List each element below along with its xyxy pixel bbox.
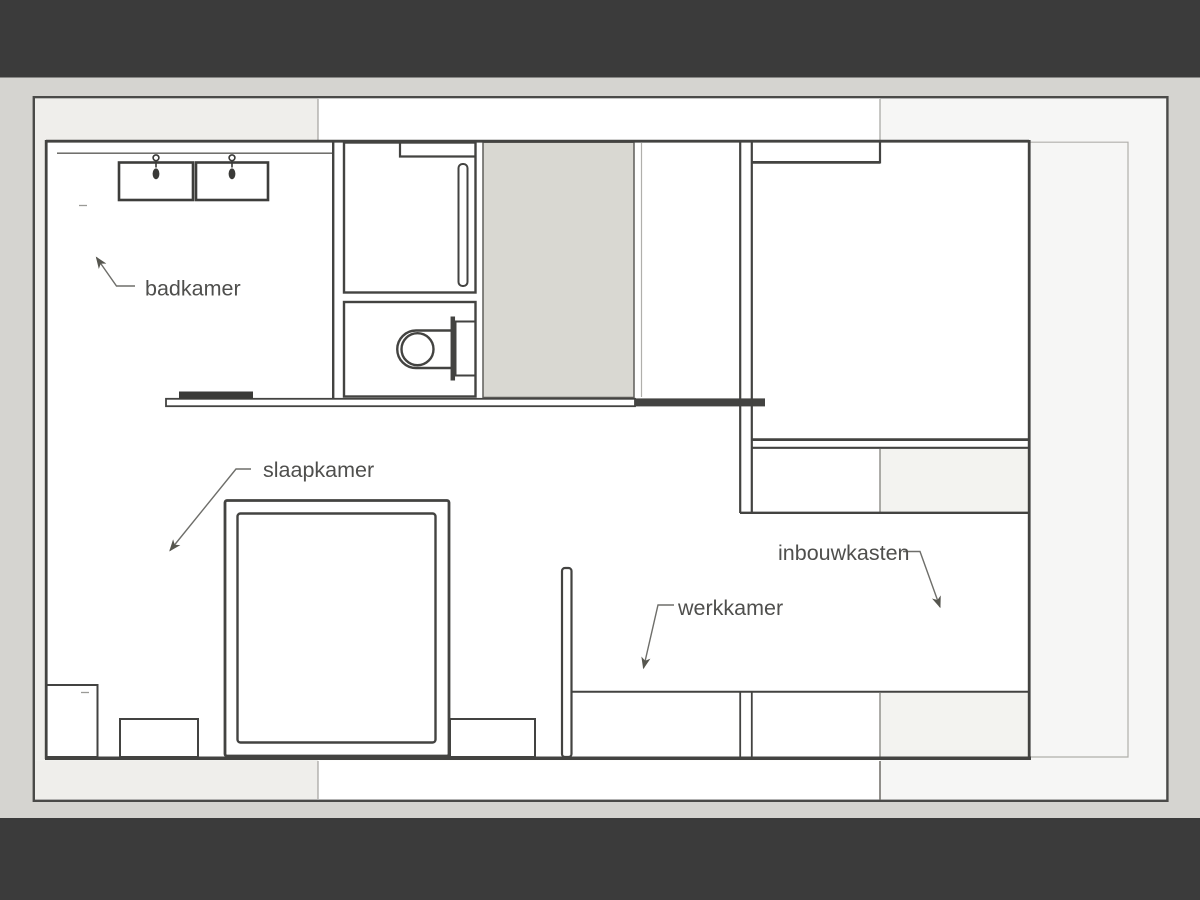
top-letterbox-bar: [0, 0, 1200, 78]
top-strip-white: [318, 98, 880, 140]
inbouwkasten-label: inbouwkasten: [778, 541, 909, 565]
left-margin-strip: [35, 140, 46, 760]
floor-plan-canvas: badkamer slaapkamer werkkamer inbouwkast…: [0, 0, 1200, 900]
sink-left-icon: [119, 163, 193, 201]
bottom-strip-gray: [35, 760, 318, 799]
badkamer-label: badkamer: [145, 277, 241, 301]
desk-strip-gray-part: [880, 693, 1029, 758]
top-strip-gray: [35, 98, 318, 140]
bottom-strip-white: [318, 760, 880, 799]
sink-right-icon: [196, 163, 268, 201]
bottom-letterbox-bar: [0, 818, 1200, 900]
slide-stage: badkamer slaapkamer werkkamer inbouwkast…: [0, 0, 1200, 900]
sliding-door-leaf: [179, 392, 253, 399]
closet-strip-gray-part: [880, 449, 1029, 512]
slaapkamer-label: slaapkamer: [263, 458, 374, 482]
werkkamer-label: werkkamer: [677, 596, 783, 620]
shaded-shaft-zone: [483, 142, 634, 397]
